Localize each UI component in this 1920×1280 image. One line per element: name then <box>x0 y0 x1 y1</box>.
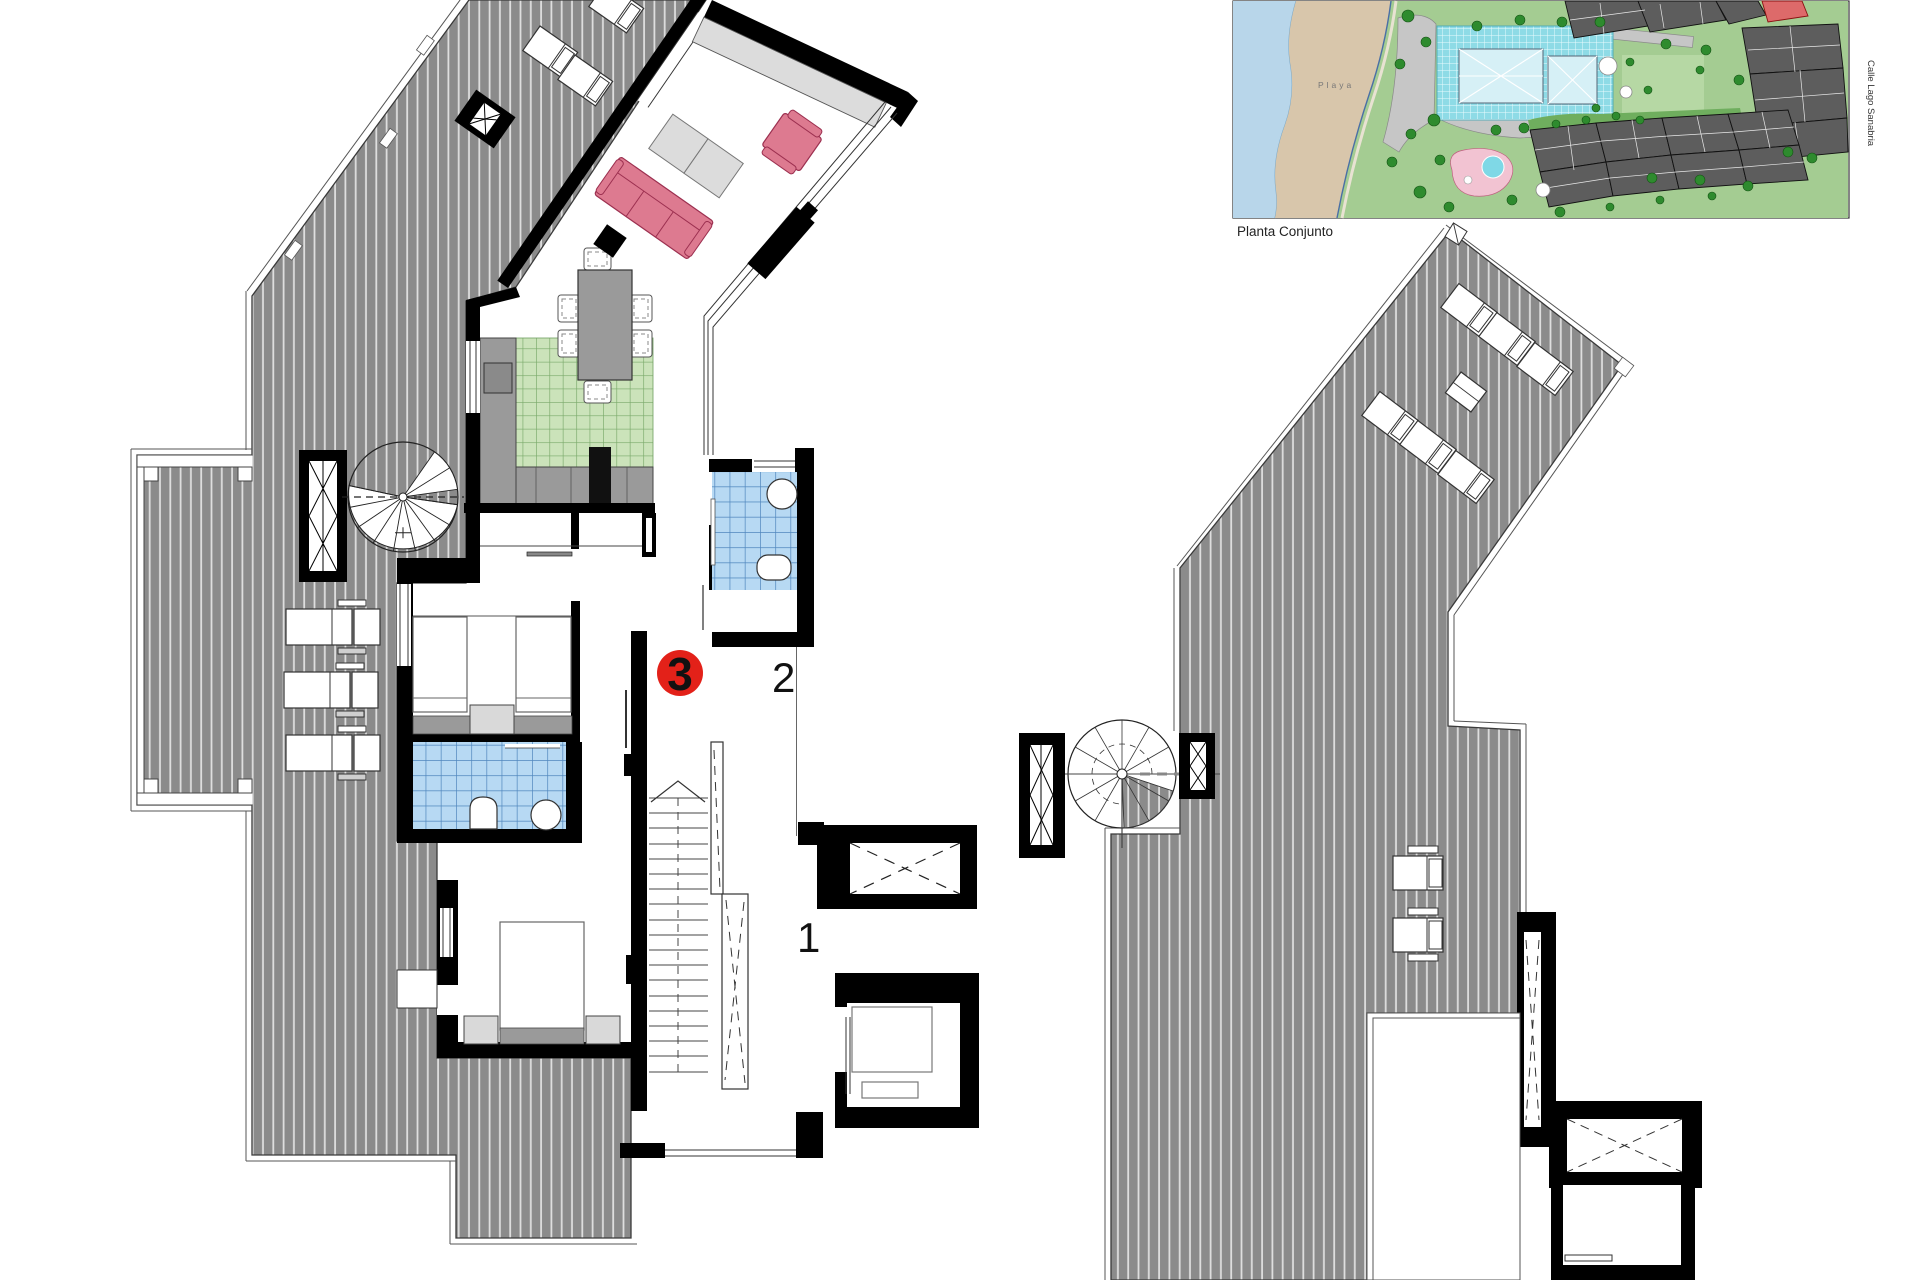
svg-text:3: 3 <box>667 648 693 700</box>
svg-text:1: 1 <box>797 914 820 961</box>
svg-text:Planta Conjunto: Planta Conjunto <box>1237 224 1333 239</box>
svg-text:2: 2 <box>772 654 795 701</box>
svg-text:Calle Lago Sanabria: Calle Lago Sanabria <box>1865 60 1876 147</box>
svg-text:Playa: Playa <box>1318 80 1354 90</box>
